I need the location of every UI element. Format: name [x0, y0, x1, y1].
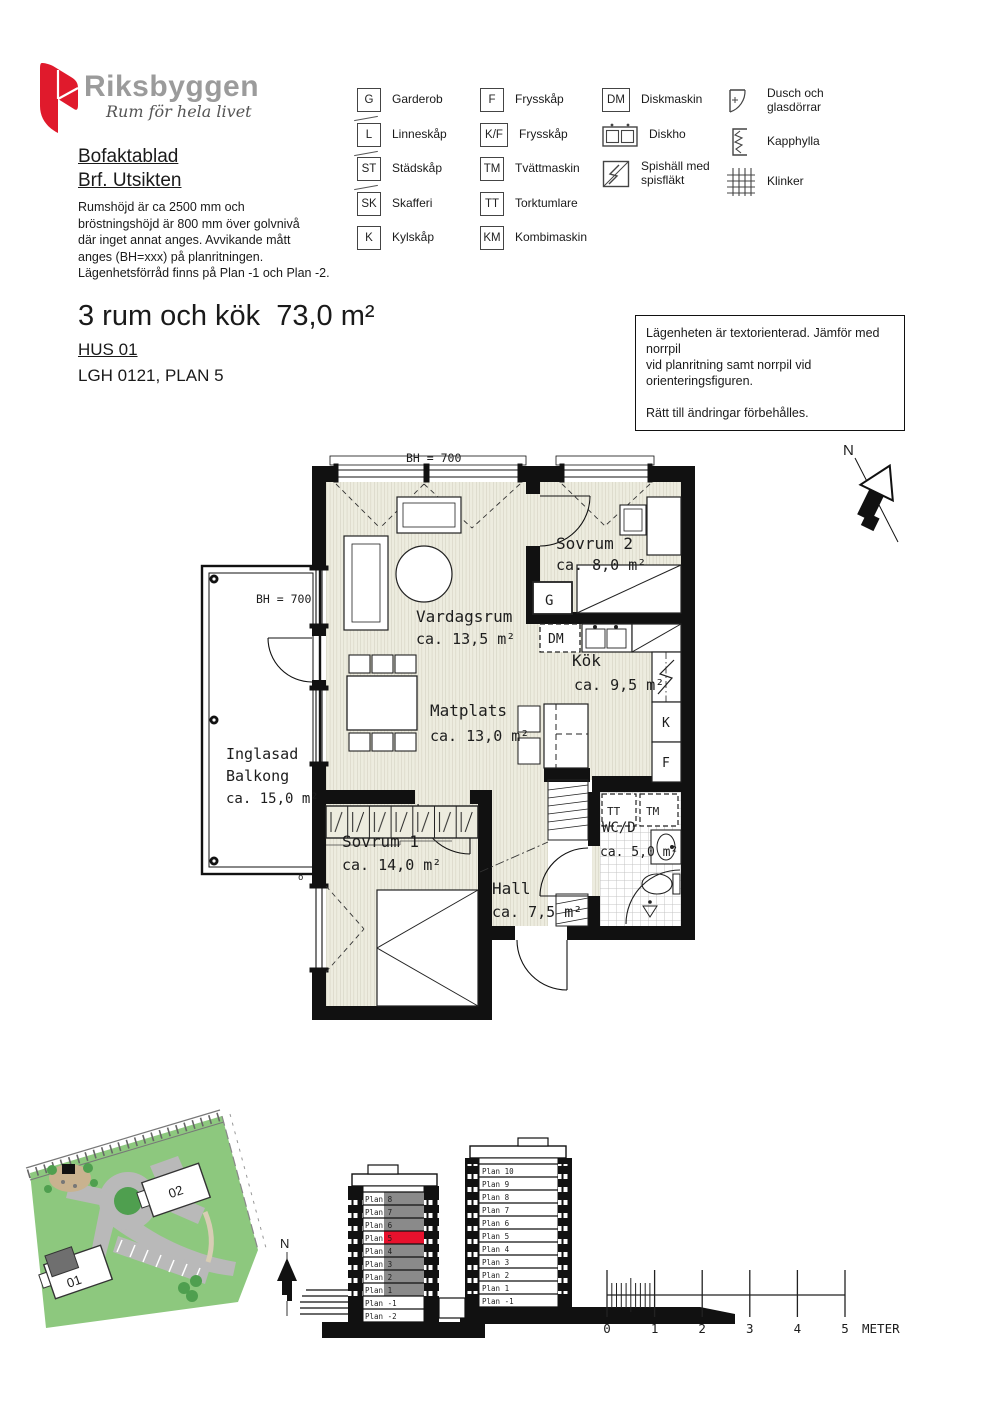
site-plan: 02 01 N — [0, 1090, 320, 1400]
legend-label: Torktumlare — [515, 197, 578, 211]
header-description: Rumshöjd är ca 2500 mm och bröstningshöj… — [78, 199, 330, 282]
linneskap-symbol: L — [357, 123, 381, 147]
hus02-floor-label: Plan 3 — [482, 1258, 509, 1267]
hus02-floor-label: Plan 2 — [482, 1271, 509, 1280]
legend-column-1: GGarderob LLinneskåp STStädskåp SKSkaffe… — [357, 88, 447, 261]
hus02-floor-label: Plan 4 — [482, 1245, 510, 1254]
tiles-icon — [726, 167, 756, 197]
vardagsrum-area: ca. 13,5 m² — [416, 630, 515, 648]
tm-label: TM — [646, 805, 660, 818]
frysskap-symbol: F — [480, 88, 504, 112]
legend-label: Diskho — [649, 128, 686, 142]
flap-line — [354, 116, 378, 121]
hus01-floor-label: Plan 5 — [365, 1234, 392, 1243]
dm-label: DM — [548, 632, 564, 647]
legend-label: Frysskåp — [519, 128, 568, 142]
scale-tick-label: 3 — [746, 1321, 754, 1336]
toilet — [642, 874, 672, 894]
legend-item: GGarderob — [357, 88, 447, 112]
legend-column-2: FFrysskåp K/FFrysskåp TMTvättmaskin TTTo… — [480, 88, 587, 261]
legend-item: KKylskåp — [357, 226, 447, 250]
sovrum1-label: Sovrum 1 — [342, 832, 419, 851]
scale-tick-label: 2 — [698, 1321, 706, 1336]
legend-label: Kapphylla — [767, 135, 820, 149]
scale-tick-label: 5 — [841, 1321, 849, 1336]
lgh-plan-label: LGH 0121, PLAN 5 — [78, 366, 224, 386]
legend-label: Kylskåp — [392, 231, 434, 245]
legend-item: Kapphylla — [726, 127, 824, 157]
tvattmaskin-symbol: TM — [480, 157, 504, 181]
kok-area: ca. 9,5 m² — [574, 676, 664, 694]
legend-item: Dusch och glasdörrar — [726, 86, 824, 116]
riksbyggen-logo-mark — [39, 62, 79, 136]
notice-line: vid planritning samt norrpil vid oriente… — [646, 357, 894, 389]
doc-title: Bofaktablad Brf. Utsikten — [78, 145, 181, 193]
kombimaskin-symbol: KM — [480, 226, 504, 250]
sovrum2-area: ca. 8,0 m² — [556, 556, 646, 574]
sink-icon — [602, 122, 638, 148]
legend-item: TMTvättmaskin — [480, 157, 587, 181]
desc-line: Rumshöjd är ca 2500 mm och — [78, 199, 330, 216]
scale-unit-label: METER — [862, 1321, 900, 1336]
hus02-elevation: Plan 10 Plan 9 Plan 8 Plan 7 Plan 6 Plan… — [465, 1138, 572, 1307]
hus01-floor-label: Plan 3 — [365, 1260, 392, 1269]
matplats-label: Matplats — [430, 701, 507, 720]
legend-label: Tvättmaskin — [515, 162, 580, 176]
floor-plan: BH = 700 BH = 700 Vardagsrum ca. 13,5 m²… — [0, 420, 992, 1070]
k-label: K — [662, 716, 670, 731]
hus01-floor-label: Plan 4 — [365, 1247, 393, 1256]
legend-item: STStädskåp — [357, 157, 447, 181]
north-label-site: N — [280, 1236, 289, 1251]
doc-title-line2: Brf. Utsikten — [78, 169, 181, 193]
bh-balcony-label: BH = 700 — [256, 592, 311, 606]
balcony-area: ca. 15,0 m² — [226, 791, 319, 807]
shower-icon — [726, 86, 756, 116]
stove-icon — [602, 160, 630, 188]
north-label: N — [843, 442, 854, 459]
vent-mark: ö — [298, 873, 303, 883]
legend-label: Frysskåp — [515, 93, 564, 107]
hus02-floor-label: Plan 9 — [482, 1180, 509, 1189]
hus01-floor-label: Plan 8 — [365, 1195, 393, 1204]
skafferi-symbol: SK — [357, 192, 381, 216]
legend-label: Linneskåp — [392, 128, 447, 142]
torktumlare-symbol: TT — [480, 192, 504, 216]
hus02-floor-label: Plan -1 — [482, 1297, 514, 1306]
brand-name-text: Riksbyggen — [84, 70, 259, 104]
hus01-floor-label: Plan 6 — [365, 1221, 393, 1230]
dining-furniture — [347, 655, 417, 751]
legend-label: Klinker — [767, 175, 804, 189]
north-arrow-site: N — [277, 1236, 297, 1316]
legend-item: FFrysskåp — [480, 88, 587, 112]
flap-line — [354, 185, 378, 190]
hus02-floor-label: Plan 8 — [482, 1193, 510, 1202]
legend-item: Klinker — [726, 167, 824, 197]
legend-label: Garderob — [392, 93, 443, 107]
brand-tagline: Rum för hela livet — [106, 102, 259, 121]
legend-item: TTTorktumlare — [480, 192, 587, 216]
hus02-floor-label: Plan 10 — [482, 1167, 514, 1176]
bofaktablad-page: { "logo": { "brand": "Riksbyggen", "tagl… — [0, 0, 992, 1403]
legend-item: LLinneskåp — [357, 123, 447, 147]
scale-bar: 0 1 2 3 4 5 METER — [600, 1255, 992, 1345]
hus01-floor-label: Plan -2 — [365, 1312, 397, 1321]
desc-line: bröstningshöjd är 800 mm över golvnivå — [78, 216, 330, 233]
scale-tick-label: 4 — [794, 1321, 802, 1336]
sovrum1-area: ca. 14,0 m² — [342, 856, 441, 874]
hall-area: ca. 7,5 m² — [492, 903, 582, 921]
orientation-notice-box: Lägenheten är textorienterad. Jämför med… — [635, 315, 905, 431]
legend-item: KMKombimaskin — [480, 226, 587, 250]
legend-label: Spishäll med spisfläkt — [641, 160, 710, 188]
legend-label: Skafferi — [392, 197, 432, 211]
hall-label: Hall — [492, 879, 531, 898]
sovrum2-label: Sovrum 2 — [556, 534, 633, 553]
scale-bar-labels: 0 1 2 3 4 5 METER — [603, 1321, 900, 1336]
apartment-title: 3 rum och kök 73,0 m² — [78, 300, 375, 333]
legend-label: Dusch och glasdörrar — [767, 87, 824, 115]
legend-label: Diskmaskin — [641, 93, 702, 107]
hus02-floor-label: Plan 6 — [482, 1219, 510, 1228]
legend-column-3: DMDiskmaskin Diskho Spishäll med spisflä… — [602, 88, 710, 202]
hus02-floor-label: Plan 7 — [482, 1206, 509, 1215]
legend-item: DMDiskmaskin — [602, 88, 710, 112]
legend-label: Städskåp — [392, 162, 442, 176]
g-label: G — [545, 593, 553, 609]
legend-item: K/FFrysskåp — [480, 123, 587, 147]
wcd-label: WC/D — [602, 820, 636, 836]
balcony-structure — [202, 566, 320, 874]
hus02-floor-label: Plan 1 — [482, 1284, 509, 1293]
bh-top-label: BH = 700 — [406, 451, 461, 465]
legend-column-4: Dusch och glasdörrar Kapphylla Klinker — [726, 86, 824, 208]
legend-item: Diskho — [602, 123, 710, 147]
notice-line: Rätt till ändringar förbehålles. — [646, 405, 894, 421]
hus01-floor-label: Plan 1 — [365, 1286, 392, 1295]
scale-tick-label: 1 — [651, 1321, 659, 1336]
north-arrow-plan: N — [843, 442, 906, 542]
tt-label: TT — [607, 805, 621, 818]
kylskap-symbol: K — [357, 226, 381, 250]
desc-line: anges (BH=xxx) på planritningen. — [78, 249, 330, 266]
elevation-connector — [439, 1298, 465, 1318]
legend-item: Spishäll med spisfläkt — [602, 157, 710, 191]
hus02-floor-label: Plan 5 — [482, 1232, 509, 1241]
desc-line: där inget annat anges. Avvikande mått — [78, 232, 330, 249]
flap-line — [354, 150, 378, 155]
hus-label: HUS 01 — [78, 340, 138, 360]
balcony-label-1: Inglasad — [226, 745, 298, 763]
legend-item: SKSkafferi — [357, 192, 447, 216]
kyl-frys-symbol: K/F — [480, 123, 508, 147]
hus01-floor-label: Plan 7 — [365, 1208, 392, 1217]
hus01-floor-label: Plan 2 — [365, 1273, 392, 1282]
stadskap-symbol: ST — [357, 157, 381, 181]
legend-label: Kombimaskin — [515, 231, 587, 245]
hus01-elevation: Plan 8 Plan 7 Plan 6 Plan 5 Plan 4 Plan … — [348, 1165, 439, 1322]
wcd-area: ca. 5,0 m² — [600, 845, 678, 860]
kok-label: Kök — [572, 651, 601, 670]
doc-title-line1: Bofaktablad — [78, 145, 181, 169]
vardagsrum-label: Vardagsrum — [416, 607, 512, 626]
desc-line: Lägenhetsförråd finns på Plan -1 och Pla… — [78, 265, 330, 282]
matplats-area: ca. 13,0 m² — [430, 727, 529, 745]
brand-name: Riksbyggen Rum för hela livet — [84, 70, 259, 121]
coatrack-icon — [726, 127, 756, 157]
hus01-floor-label: Plan -1 — [365, 1299, 397, 1308]
garderob-symbol: G — [357, 88, 381, 112]
notice-line: Lägenheten är textorienterad. Jämför med… — [646, 325, 894, 357]
balcony-label-2: Balkong — [226, 767, 289, 785]
f-label: F — [662, 756, 670, 771]
scale-tick-label: 0 — [603, 1321, 611, 1336]
diskmaskin-symbol: DM — [602, 88, 630, 112]
scale-bar-ticks — [607, 1270, 845, 1317]
